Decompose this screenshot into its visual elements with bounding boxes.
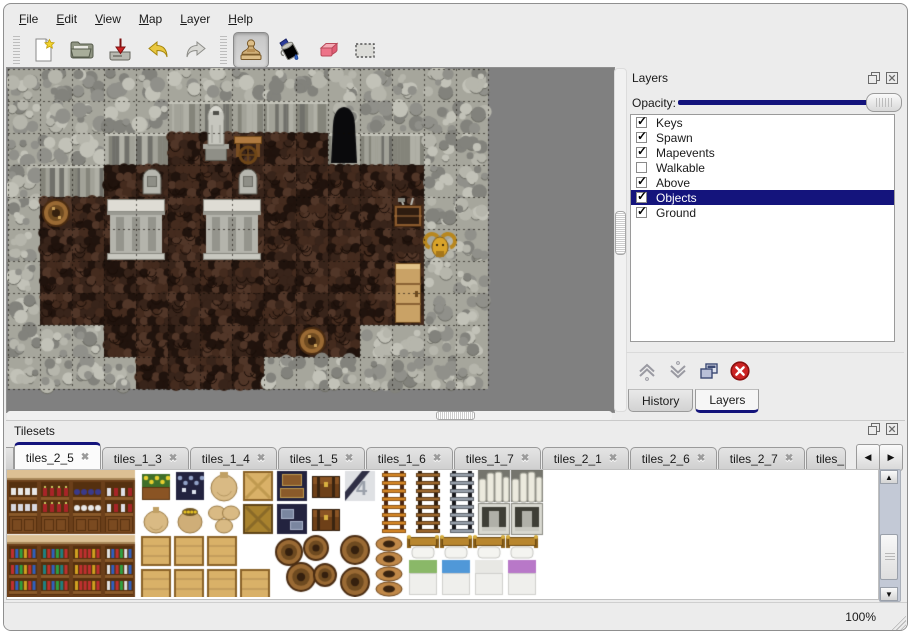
- float-panel-button[interactable]: [867, 71, 881, 85]
- new-map-button[interactable]: [26, 32, 62, 68]
- tileset-tab-tiles_1_6[interactable]: tiles_1_6✖: [366, 447, 453, 470]
- tileset-tab-tiles_1_4[interactable]: tiles_1_4✖: [190, 447, 277, 470]
- tab-label: Layers: [709, 393, 745, 407]
- tileset-vertical-scrollbar[interactable]: ▲ ▼: [879, 469, 901, 602]
- duplicate-layer-button[interactable]: [696, 358, 722, 384]
- close-tab-icon[interactable]: ✖: [521, 453, 529, 464]
- tab-layers[interactable]: Layers: [695, 389, 759, 413]
- resize-grip[interactable]: [891, 615, 906, 630]
- tileset-tab-tiles_2_5[interactable]: tiles_2_5✖: [14, 442, 101, 470]
- close-tab-icon[interactable]: ✖: [169, 453, 177, 464]
- tileset-tab-tiles_1_5[interactable]: tiles_1_5✖: [278, 447, 365, 470]
- check-icon: ✓: [637, 130, 647, 142]
- scroll-tabs-left-button[interactable]: ◀: [856, 444, 880, 471]
- layer-row-ground[interactable]: ✓Ground: [631, 205, 894, 220]
- tab-label: tiles_2_5: [26, 451, 74, 465]
- scrollbar-grip: [885, 553, 895, 562]
- zoom-level: 100%: [845, 610, 876, 624]
- layer-checkbox[interactable]: ✓: [636, 177, 647, 188]
- arrow-right-icon: ▶: [888, 452, 895, 463]
- save-map-button[interactable]: [102, 32, 138, 68]
- map-viewport: [6, 67, 615, 413]
- lower-layer-button[interactable]: [665, 358, 691, 384]
- delete-layer-button[interactable]: [727, 358, 753, 384]
- scroll-tabs-right-button[interactable]: ▶: [879, 444, 903, 471]
- close-tab-icon[interactable]: ✖: [609, 453, 617, 464]
- new-file-icon: [31, 37, 57, 63]
- tileset-tab-partial[interactable]: [6, 447, 14, 470]
- menu-view[interactable]: View: [86, 9, 130, 29]
- layer-name: Mapevents: [656, 146, 715, 160]
- close-panel-button[interactable]: [885, 422, 899, 436]
- layer-name: Keys: [656, 116, 683, 130]
- layers-panel-title: Layers: [632, 71, 668, 85]
- menu-bar: File Edit View Map Layer Help: [10, 8, 262, 30]
- slider-handle[interactable]: [866, 93, 902, 112]
- layer-checkbox[interactable]: ✓: [636, 207, 647, 218]
- tab-label: tiles_2_7: [730, 452, 778, 466]
- menu-help[interactable]: Help: [219, 9, 262, 29]
- stamp-tool-button[interactable]: [233, 32, 269, 68]
- tab-label: tiles_1_6: [378, 452, 426, 466]
- layer-name: Walkable: [656, 161, 705, 175]
- slider-groove: [678, 100, 896, 105]
- tab-label: tiles_2_6: [642, 452, 690, 466]
- close-tab-icon[interactable]: ✖: [81, 452, 89, 463]
- tileset-tab-tiles_1_3[interactable]: tiles_1_3✖: [102, 447, 189, 470]
- float-panel-button[interactable]: [867, 422, 881, 436]
- tab-label: tiles_2_1: [554, 452, 602, 466]
- close-tab-icon[interactable]: ✖: [257, 453, 265, 464]
- layer-name: Ground: [656, 206, 696, 220]
- map-canvas[interactable]: [7, 68, 612, 410]
- opacity-label: Opacity:: [632, 96, 676, 110]
- close-tab-icon[interactable]: ✖: [697, 453, 705, 464]
- arrow-down-icon: ▼: [885, 590, 893, 599]
- layer-row-spawn[interactable]: ✓Spawn: [631, 130, 894, 145]
- save-icon: [107, 37, 133, 63]
- check-icon: ✓: [637, 175, 647, 187]
- layer-checkbox[interactable]: ✓: [636, 132, 647, 143]
- status-bar: 100%: [4, 602, 907, 631]
- layer-name: Spawn: [656, 131, 693, 145]
- tileset-tab-tiles_2_7[interactable]: tiles_2_7✖: [718, 447, 805, 470]
- redo-button[interactable]: [178, 32, 214, 68]
- check-icon: ✓: [637, 115, 647, 127]
- open-map-button[interactable]: [64, 32, 100, 68]
- scrollbar-thumb[interactable]: [615, 211, 626, 255]
- toolbar: [8, 31, 384, 69]
- scroll-up-button[interactable]: ▲: [880, 470, 898, 484]
- close-tab-icon[interactable]: ✖: [785, 453, 793, 464]
- toolbar-drag-handle[interactable]: [220, 36, 227, 64]
- check-icon: ✓: [637, 190, 647, 202]
- tileset-canvas[interactable]: [7, 470, 876, 597]
- fill-bucket-icon: [276, 37, 302, 63]
- layer-row-walkable[interactable]: Walkable: [631, 160, 894, 175]
- dock-tab-bar: History Layers: [626, 389, 761, 416]
- raise-layer-button[interactable]: [634, 358, 660, 384]
- layer-checkbox[interactable]: ✓: [636, 147, 647, 158]
- layer-row-above[interactable]: ✓Above: [631, 175, 894, 190]
- arrow-left-icon: ◀: [865, 452, 872, 463]
- check-icon: ✓: [637, 205, 647, 217]
- layer-row-mapevents[interactable]: ✓Mapevents: [631, 145, 894, 160]
- tab-label: tiles_1_7: [466, 452, 514, 466]
- tilesets-panel-title: Tilesets: [14, 424, 55, 438]
- tab-label: tiles_1_5: [290, 452, 338, 466]
- tab-label: History: [642, 394, 679, 408]
- tab-label: tiles_1_4: [202, 452, 250, 466]
- menu-map[interactable]: Map: [130, 9, 171, 29]
- eraser-icon: [314, 37, 340, 63]
- redo-icon: [183, 37, 209, 63]
- eraser-tool-button[interactable]: [309, 32, 345, 68]
- layer-checkbox[interactable]: ✓: [636, 117, 647, 128]
- tileset-view: [6, 469, 879, 600]
- layer-checkbox[interactable]: ✓: [636, 192, 647, 203]
- layer-checkbox[interactable]: [636, 162, 647, 173]
- layer-name: Above: [656, 176, 690, 190]
- menu-edit[interactable]: Edit: [47, 9, 86, 29]
- stamp-icon: [238, 37, 264, 63]
- layers-panel: Layers Opacity: ✓Keys ✓Spawn ✓Mapevents …: [626, 69, 904, 389]
- layer-list: ✓Keys ✓Spawn ✓Mapevents Walkable ✓Above …: [630, 114, 895, 342]
- selection-rect-icon: [352, 37, 378, 63]
- fill-tool-button[interactable]: [271, 32, 307, 68]
- tileset-tab-truncated[interactable]: tiles_: [806, 447, 846, 470]
- tileset-tab-tiles_2_6[interactable]: tiles_2_6✖: [630, 447, 717, 470]
- arrow-up-icon: ▲: [885, 473, 893, 482]
- close-tab-icon[interactable]: ✖: [345, 453, 353, 464]
- slider-grip: [876, 98, 892, 107]
- menu-layer[interactable]: Layer: [171, 9, 219, 29]
- tab-label: tiles_1_3: [114, 452, 162, 466]
- close-panel-button[interactable]: [885, 71, 899, 85]
- tilesets-panel-header: Tilesets: [6, 420, 905, 442]
- toolbar-drag-handle[interactable]: [13, 36, 20, 64]
- layer-row-objects[interactable]: ✓Objects: [631, 190, 894, 205]
- layer-actions: [626, 352, 904, 388]
- tileset-tab-tiles_1_7[interactable]: tiles_1_7✖: [454, 447, 541, 470]
- open-folder-icon: [69, 37, 95, 63]
- tab-history[interactable]: History: [628, 389, 693, 412]
- tileset-tab-tiles_2_1[interactable]: tiles_2_1✖: [542, 447, 629, 470]
- select-tool-button[interactable]: [347, 32, 383, 68]
- menu-file[interactable]: File: [10, 9, 47, 29]
- opacity-slider[interactable]: [678, 93, 900, 111]
- tileset-tab-bar: tiles_2_5✖ tiles_1_3✖ tiles_1_4✖ tiles_1…: [6, 441, 905, 470]
- scrollbar-thumb[interactable]: [880, 534, 898, 580]
- check-icon: ✓: [637, 145, 647, 157]
- layer-name: Objects: [656, 191, 697, 205]
- close-tab-icon[interactable]: ✖: [433, 453, 441, 464]
- tab-label: tiles_: [816, 452, 844, 466]
- app-window: File Edit View Map Layer Help: [3, 3, 908, 631]
- map-horizontal-scrollbar[interactable]: [7, 411, 612, 420]
- undo-button[interactable]: [140, 32, 176, 68]
- layer-row-keys[interactable]: ✓Keys: [631, 115, 894, 130]
- undo-icon: [145, 37, 171, 63]
- scroll-down-button[interactable]: ▼: [880, 587, 898, 601]
- scrollbar-thumb[interactable]: [436, 411, 475, 420]
